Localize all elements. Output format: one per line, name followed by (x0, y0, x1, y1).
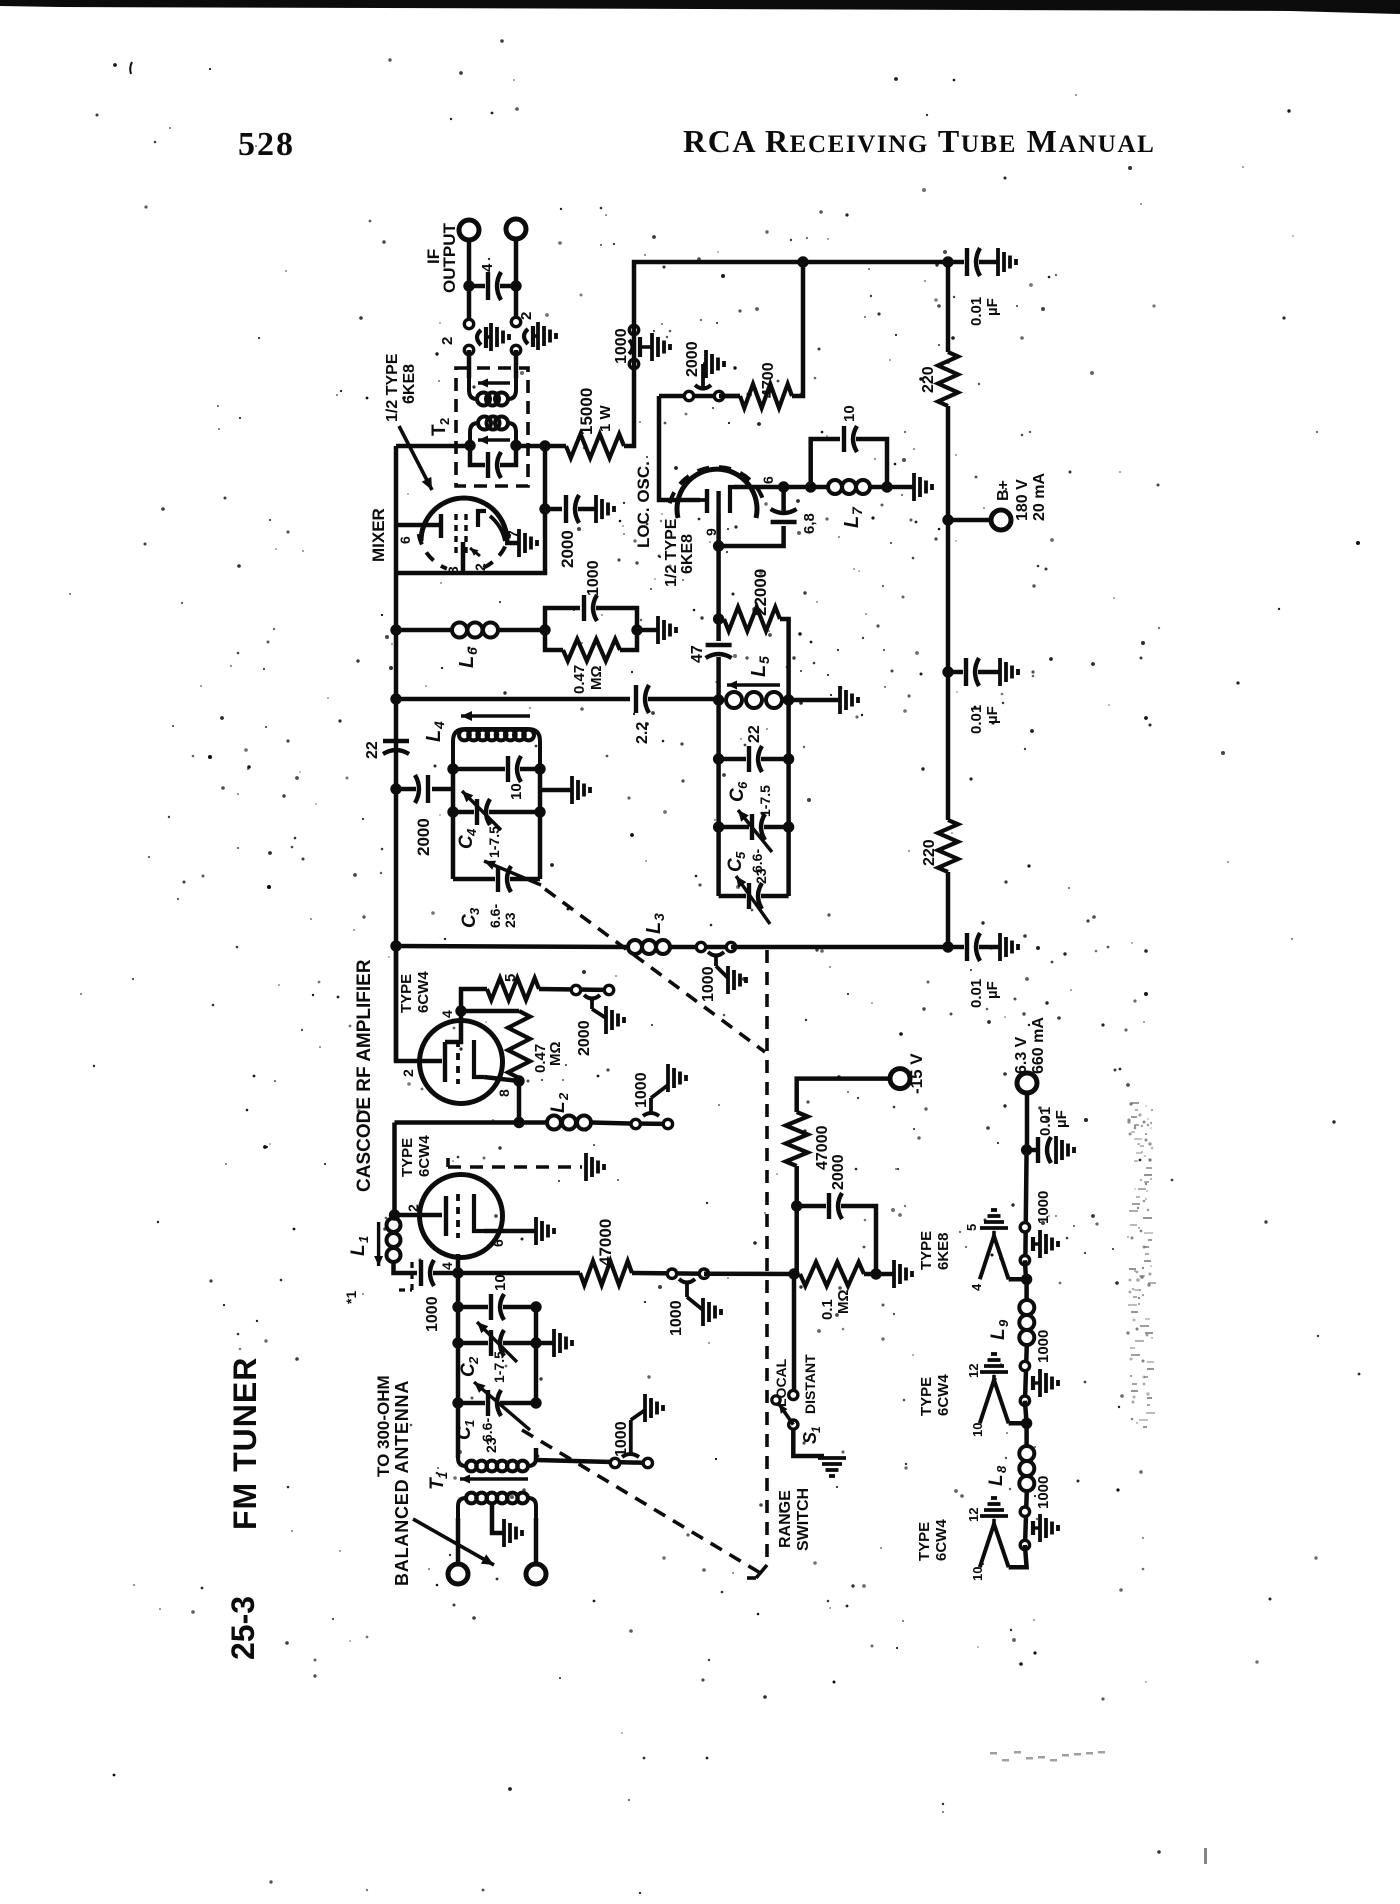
svg-text:2: 2 (400, 1069, 416, 1077)
svg-text:0.1: 0.1 (819, 1299, 836, 1320)
svg-text:MΩ: MΩ (547, 1041, 564, 1066)
svg-text:2: 2 (439, 337, 456, 345)
svg-text:180 V: 180 V (1014, 479, 1031, 521)
svg-text:µF: µF (1053, 1110, 1070, 1128)
svg-text:1: 1 (809, 1426, 823, 1433)
svg-text:1000: 1000 (1035, 1330, 1052, 1363)
svg-text:22: 22 (746, 725, 763, 743)
svg-text:5: 5 (733, 851, 748, 859)
svg-text:1/2 TYPE: 1/2 TYPE (384, 353, 401, 422)
svg-text:6CW4: 6CW4 (416, 1135, 433, 1177)
svg-text:4: 4 (464, 828, 479, 837)
svg-text:TYPE: TYPE (399, 1138, 416, 1177)
svg-text:FM TUNER: FM TUNER (227, 1357, 263, 1530)
svg-text:10: 10 (492, 1274, 509, 1291)
svg-text:2: 2 (556, 1092, 571, 1101)
svg-text:1: 1 (356, 1236, 371, 1243)
svg-text:6KE8: 6KE8 (935, 1232, 952, 1270)
svg-text:2000: 2000 (684, 341, 701, 377)
svg-text:1-7.5: 1-7.5 (486, 826, 502, 858)
svg-text:7: 7 (849, 506, 865, 515)
svg-text:10: 10 (970, 1567, 985, 1581)
svg-text:23: 23 (502, 912, 518, 928)
svg-text:L: L (348, 1244, 369, 1256)
svg-text:1000: 1000 (424, 1296, 441, 1332)
svg-text:SWITCH: SWITCH (795, 1488, 812, 1551)
svg-text:23: 23 (483, 1437, 499, 1453)
svg-text:*1: *1 (343, 1291, 359, 1304)
svg-text:12: 12 (966, 1364, 981, 1378)
svg-text:TYPE: TYPE (916, 1522, 933, 1561)
svg-text:15000: 15000 (577, 388, 596, 435)
svg-text:2: 2 (437, 418, 452, 425)
svg-text:47: 47 (689, 645, 706, 663)
svg-text:2: 2 (466, 1356, 481, 1365)
svg-text:6CW4: 6CW4 (415, 971, 432, 1013)
svg-text:DISTANT: DISTANT (802, 1354, 818, 1414)
svg-text:RANGE: RANGE (777, 1490, 794, 1548)
svg-text:5: 5 (756, 656, 772, 664)
svg-text:2000: 2000 (576, 1020, 593, 1056)
svg-text:47000: 47000 (814, 1125, 831, 1170)
svg-text:2000: 2000 (414, 818, 433, 856)
svg-text:LOC. OSC.: LOC. OSC. (634, 461, 653, 548)
svg-text:1 W: 1 W (597, 404, 614, 432)
svg-text:8: 8 (994, 1465, 1009, 1473)
svg-text:220: 220 (921, 839, 938, 866)
svg-text:10: 10 (841, 405, 858, 422)
svg-text:-15 V: -15 V (907, 1053, 926, 1094)
svg-text:1/2 TYPE: 1/2 TYPE (663, 518, 680, 587)
svg-text:6CW4: 6CW4 (935, 1374, 952, 1416)
svg-text:BALANCED ANTENNA: BALANCED ANTENNA (392, 1380, 412, 1586)
svg-text:L: L (643, 922, 665, 934)
svg-text:LOCAL: LOCAL (773, 1358, 789, 1407)
svg-text:6: 6 (397, 536, 413, 544)
svg-text:47000: 47000 (596, 1219, 615, 1266)
svg-text:OUTPUT: OUTPUT (440, 223, 459, 294)
svg-text:C: C (456, 835, 477, 849)
svg-text:6: 6 (760, 476, 776, 484)
svg-text:3: 3 (467, 907, 482, 915)
svg-text:7: 7 (505, 530, 521, 538)
svg-text:8: 8 (496, 1089, 512, 1097)
svg-text:C: C (458, 1363, 479, 1377)
svg-text:2: 2 (405, 1204, 421, 1212)
svg-text:2000: 2000 (830, 1154, 847, 1190)
svg-text:4: 4 (969, 1283, 984, 1291)
svg-text:L: L (548, 1101, 569, 1113)
svg-text:1-7.5: 1-7.5 (757, 785, 773, 817)
svg-text:23: 23 (753, 868, 769, 884)
svg-text:20 mA: 20 mA (1031, 473, 1048, 521)
svg-text:2: 2 (518, 312, 535, 320)
svg-text:1000: 1000 (613, 1421, 630, 1457)
svg-text:1000: 1000 (668, 1300, 685, 1336)
svg-text:12: 12 (966, 1508, 981, 1522)
svg-text:9: 9 (996, 1319, 1011, 1327)
svg-text:L: L (841, 516, 863, 528)
svg-text:25-3: 25-3 (225, 1596, 261, 1660)
svg-text:0.47: 0.47 (571, 665, 588, 694)
svg-text:B+: B+ (995, 480, 1012, 501)
svg-text:0.01: 0.01 (1037, 1107, 1054, 1136)
svg-text:C: C (727, 788, 748, 802)
svg-text:µF: µF (984, 298, 1001, 316)
svg-text:22: 22 (364, 741, 381, 759)
svg-text:TO 300-OHM: TO 300-OHM (374, 1375, 393, 1477)
svg-text:6: 6 (464, 647, 480, 655)
svg-text:6: 6 (735, 781, 750, 789)
svg-text:µF: µF (984, 981, 1001, 999)
svg-text:5: 5 (502, 974, 519, 982)
svg-text:MIXER: MIXER (369, 508, 388, 562)
svg-text:µF: µF (984, 706, 1001, 724)
svg-text:CASCODE RF AMPLIFIER: CASCODE RF AMPLIFIER (354, 959, 375, 1192)
svg-text:528: 528 (238, 126, 295, 163)
svg-text:0.01: 0.01 (968, 979, 985, 1008)
svg-text:1000: 1000 (633, 1072, 650, 1108)
svg-text:10: 10 (508, 783, 525, 800)
svg-text:3: 3 (651, 913, 667, 921)
svg-text:1-7.5: 1-7.5 (491, 1351, 507, 1383)
svg-text:TYPE: TYPE (398, 974, 415, 1013)
svg-text:2000: 2000 (558, 530, 577, 568)
svg-text:1000: 1000 (700, 966, 717, 1002)
svg-text:4: 4 (431, 721, 447, 730)
svg-text:5: 5 (964, 1224, 979, 1231)
svg-text:C: C (459, 914, 480, 928)
svg-text:0.01: 0.01 (968, 297, 985, 326)
svg-text:4: 4 (439, 1010, 455, 1018)
svg-text:0.01: 0.01 (968, 705, 985, 734)
svg-text:4: 4 (439, 1262, 455, 1270)
svg-text:L: L (986, 1474, 1007, 1486)
svg-text:6: 6 (490, 1239, 506, 1247)
svg-text:10: 10 (970, 1423, 985, 1437)
svg-text:L: L (988, 1328, 1009, 1340)
svg-text:4700: 4700 (760, 362, 777, 398)
svg-text:6,8: 6,8 (801, 513, 818, 534)
svg-text:660 mA: 660 mA (1030, 1017, 1047, 1074)
svg-text:1000: 1000 (1035, 1191, 1052, 1224)
svg-text:L: L (423, 730, 445, 742)
svg-text:L: L (456, 656, 478, 668)
svg-text:4: 4 (479, 263, 496, 272)
svg-text:1000: 1000 (1035, 1476, 1052, 1509)
svg-text:TYPE: TYPE (918, 1377, 935, 1416)
svg-text:TYPE: TYPE (918, 1231, 935, 1270)
svg-text:L: L (748, 665, 770, 677)
svg-text:6.3 V: 6.3 V (1013, 1036, 1030, 1074)
svg-text:C: C (725, 858, 746, 872)
svg-text:6.6-: 6.6- (487, 904, 503, 928)
svg-text:6CW4: 6CW4 (933, 1519, 950, 1561)
svg-text:MΩ: MΩ (588, 665, 605, 690)
svg-text:MΩ: MΩ (835, 1289, 852, 1314)
svg-text:1000: 1000 (585, 560, 602, 596)
svg-text:6KE8: 6KE8 (679, 534, 696, 574)
svg-text:1: 1 (462, 1420, 477, 1427)
svg-text:1000: 1000 (613, 328, 630, 364)
svg-text:2: 2 (472, 563, 488, 571)
